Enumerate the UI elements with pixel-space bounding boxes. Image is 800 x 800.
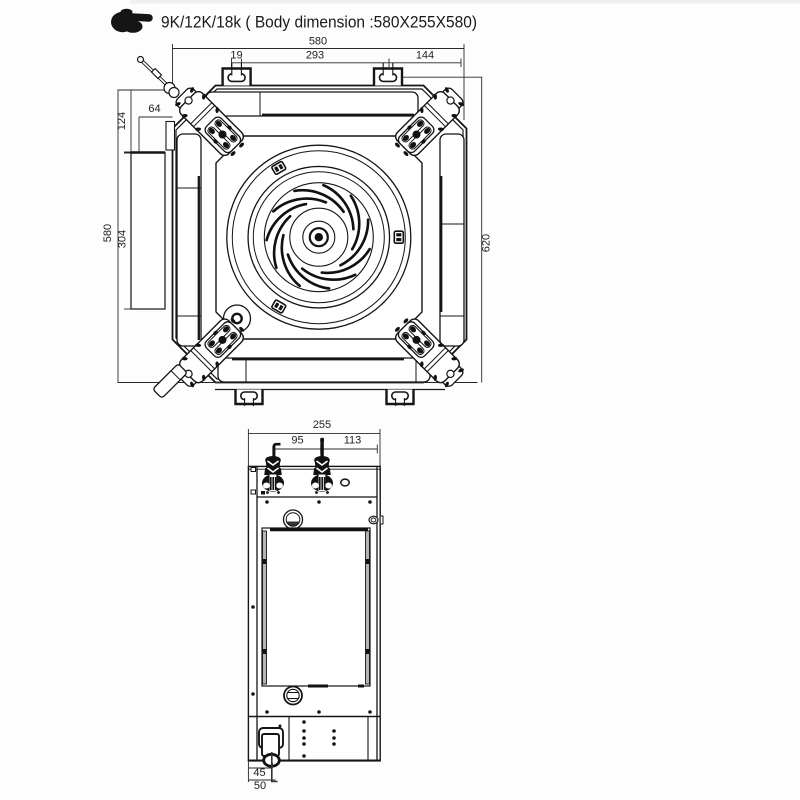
svg-text:304: 304 <box>117 230 129 248</box>
svg-text:50: 50 <box>254 780 266 792</box>
svg-text:255: 255 <box>313 419 331 431</box>
svg-text:19: 19 <box>230 50 242 62</box>
svg-text:95: 95 <box>291 435 303 447</box>
svg-text:293: 293 <box>306 50 324 62</box>
svg-text:580: 580 <box>102 224 114 242</box>
svg-text:45: 45 <box>253 767 265 779</box>
svg-text:113: 113 <box>344 435 362 447</box>
svg-text:9K/12K/18k ( Body dimension :5: 9K/12K/18k ( Body dimension :580X255X580… <box>161 13 477 32</box>
svg-text:144: 144 <box>416 50 434 62</box>
svg-text:64: 64 <box>148 103 160 115</box>
svg-text:124: 124 <box>116 112 128 130</box>
svg-text:620: 620 <box>481 234 493 252</box>
svg-text:580: 580 <box>309 36 327 48</box>
